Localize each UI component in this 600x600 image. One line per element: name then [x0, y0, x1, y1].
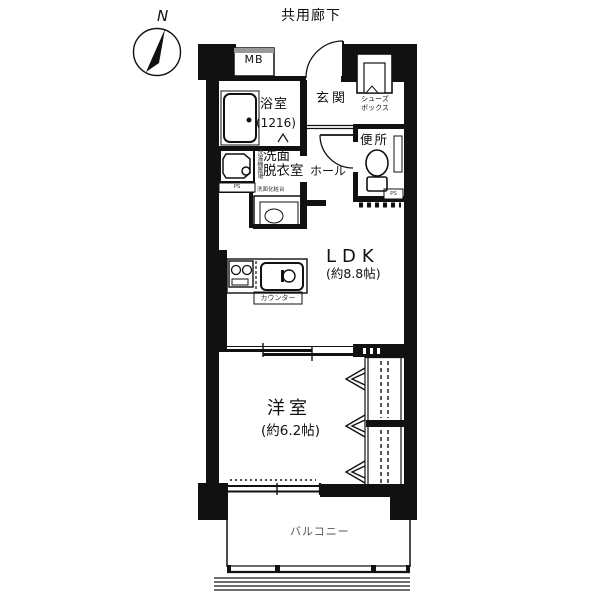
wall-washroom-jog — [249, 188, 253, 228]
compass-icon — [134, 29, 181, 76]
bathroom-size-label: (1216) — [256, 117, 296, 131]
room-label-bathroom: 浴室 — [260, 98, 288, 113]
entrance-door — [306, 41, 346, 82]
wall-left — [206, 44, 219, 487]
closet-divider — [366, 420, 404, 427]
entrance-step-line — [306, 126, 353, 129]
pillar-bottom-left — [198, 483, 228, 520]
room-label-toilet: 便所 — [360, 133, 389, 147]
washing-machine-pan — [220, 150, 254, 182]
vanity-label: 洗面化粧台 — [257, 187, 285, 193]
room-label-hall: ホール — [310, 165, 346, 179]
meter-box-label: MB — [234, 54, 274, 67]
shoe-box — [357, 54, 392, 93]
western-room-size-label: (約6.2帖) — [261, 424, 320, 440]
balcony-label: バルコニー — [290, 526, 350, 539]
shoe-box-label-line1: シューズ — [354, 95, 396, 103]
corridor-label: 共用廊下 — [281, 8, 341, 24]
sliding-door — [218, 343, 353, 361]
wall-bottom-right — [320, 484, 404, 497]
room-label-ldk: LDK — [326, 247, 380, 268]
balcony-edge-lines — [214, 578, 410, 590]
washing-machine-label: 洗濯機置場 — [255, 149, 262, 179]
ps-label-washroom: PS — [219, 184, 255, 190]
room-label-entrance: 玄関 — [316, 92, 348, 107]
counter-label: カウンター — [254, 294, 302, 302]
ps-label-toilet: PS — [384, 191, 403, 197]
pillar-bottom-right — [390, 497, 417, 520]
folding-door-marks — [346, 368, 365, 483]
ldk-size-label: (約8.8帖) — [326, 267, 381, 281]
wall-bath-entrance — [300, 80, 307, 150]
wall-hall-ldk-stub — [300, 200, 326, 206]
wall-left-kitchen — [218, 250, 227, 352]
room-label-washroom-line2: 脱衣室 — [263, 164, 304, 180]
wall-toilet-top — [353, 124, 404, 129]
compass-north-label: N — [157, 8, 168, 25]
wall-door-ticks — [363, 348, 380, 354]
wall-toilet-left-a — [353, 128, 358, 142]
wall-right — [404, 44, 417, 497]
bath-door-mark — [278, 134, 288, 142]
vanity-unit — [254, 196, 303, 227]
room-label-western-room: 洋室 — [267, 399, 311, 420]
balcony-window — [225, 480, 320, 495]
shoe-box-label-line2: ボックス — [354, 104, 396, 112]
floor-plan: N 共用廊下 MB 浴室 (1216) 玄関 シューズ ボックス ホール 便所 … — [0, 0, 600, 600]
bathtub — [221, 91, 259, 145]
wall-washroom-hall-a — [300, 146, 307, 156]
